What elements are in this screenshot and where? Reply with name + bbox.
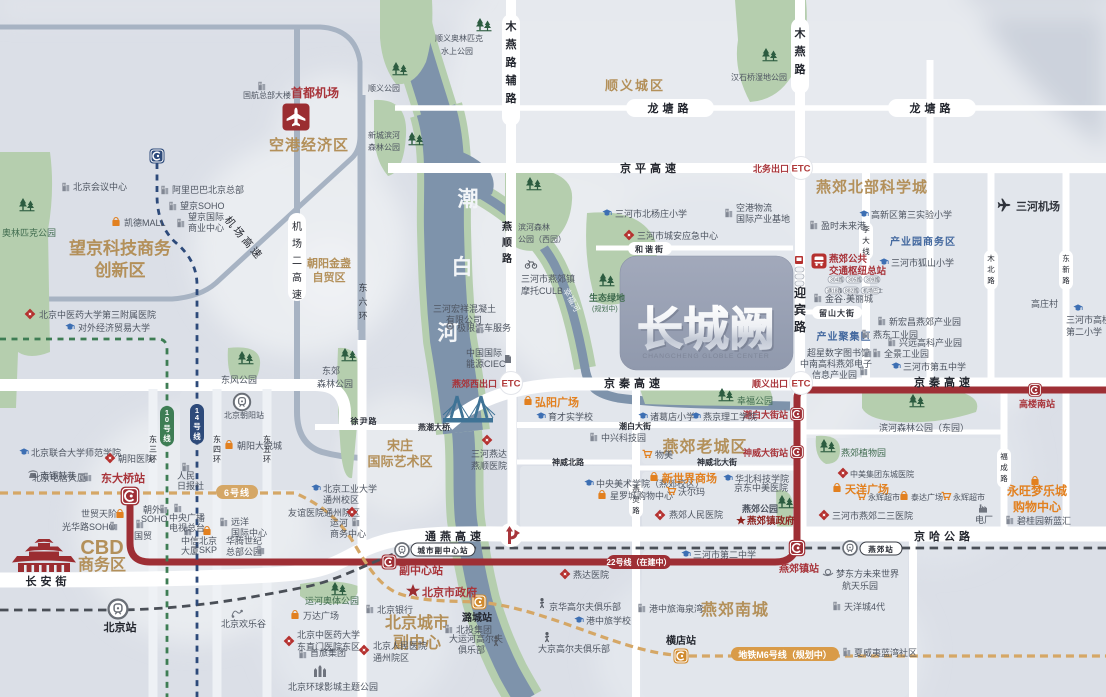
svg-text:新宏昌燕郊产业园: 新宏昌燕郊产业园 [889, 316, 961, 327]
svg-text:国航总部大楼: 国航总部大楼 [243, 90, 291, 100]
svg-text:燕郊植物园: 燕郊植物园 [841, 447, 886, 458]
svg-text:产业园商务区: 产业园商务区 [890, 235, 956, 248]
svg-text:三河市狐山小学: 三河市狐山小学 [891, 257, 954, 268]
svg-text:通燕高速: 通燕高速 [425, 529, 485, 543]
svg-text:北京电信大厦: 北京电信大厦 [32, 472, 86, 483]
svg-text:燕顺路: 燕顺路 [502, 220, 513, 265]
svg-text:京秦高速: 京秦高速 [604, 376, 664, 390]
svg-text:三河机场: 三河机场 [1016, 199, 1060, 213]
svg-text:北投集团: 北投集团 [456, 624, 492, 635]
svg-text:顺义公园: 顺义公园 [368, 84, 400, 93]
svg-text:中兴科技园: 中兴科技园 [601, 432, 646, 443]
svg-text:燕郊老城区: 燕郊老城区 [662, 437, 747, 456]
svg-text:CHANGCHENG GLOBLE CENTER: CHANGCHENG GLOBLE CENTER [642, 353, 769, 360]
svg-text:燕郊西出口: 燕郊西出口 [452, 378, 497, 389]
svg-text:福成路: 福成路 [1000, 452, 1008, 483]
svg-text:港中旅学校: 港中旅学校 [586, 615, 631, 626]
svg-text:北京站: 北京站 [104, 620, 137, 634]
svg-text:汉石桥湿地公园: 汉石桥湿地公园 [731, 72, 787, 82]
svg-text:京华高尔夫俱乐部: 京华高尔夫俱乐部 [549, 601, 621, 612]
svg-text:顺义出口: 顺义出口 [752, 378, 788, 389]
svg-text:兴远高科产业园: 兴远高科产业园 [899, 337, 962, 348]
svg-text:燕潮大桥: 燕潮大桥 [418, 422, 451, 432]
svg-text:京秦高速: 京秦高速 [914, 375, 974, 389]
svg-text:盈时未来港: 盈时未来港 [821, 220, 866, 231]
svg-text:木燕路: 木燕路 [794, 26, 807, 76]
svg-text:泰达广场: 泰达广场 [911, 492, 943, 502]
svg-text:潮白大街: 潮白大街 [619, 421, 651, 431]
svg-text:港中旅海泉湾: 港中旅海泉湾 [649, 603, 703, 614]
svg-text:沃尔玛: 沃尔玛 [678, 486, 705, 497]
svg-text:长城阙: 长城阙 [637, 303, 775, 355]
svg-text:长安街: 长安街 [26, 574, 71, 588]
svg-text:高庄村: 高庄村 [1031, 298, 1058, 309]
svg-text:朝阳大悦城: 朝阳大悦城 [237, 440, 282, 451]
svg-text:留山大街: 留山大街 [819, 308, 855, 318]
svg-text:三河市第五中学: 三河市第五中学 [903, 361, 966, 372]
svg-text:高楼南站: 高楼南站 [1019, 398, 1055, 409]
svg-text:碧桂园新蓝汇: 碧桂园新蓝汇 [1017, 515, 1071, 526]
svg-text:横店站: 横店站 [666, 634, 696, 647]
svg-text:燕郊北部科学城: 燕郊北部科学城 [816, 178, 928, 196]
svg-text:燕达医院: 燕达医院 [573, 569, 609, 580]
svg-text:诸葛店小学: 诸葛店小学 [650, 411, 695, 422]
svg-text:朝阳医院: 朝阳医院 [118, 453, 154, 464]
svg-text:万达广场: 万达广场 [303, 610, 339, 621]
svg-text:副中心站: 副中心站 [399, 563, 443, 577]
svg-text:北京中医药大学第三附属医院: 北京中医药大学第三附属医院 [39, 309, 156, 320]
svg-text:滨河森林公园（东园）: 滨河森林公园（东园） [879, 422, 969, 433]
svg-text:奥林匹克公园: 奥林匹克公园 [2, 227, 56, 238]
svg-text:北京会议中心: 北京会议中心 [73, 181, 127, 192]
svg-text:燕京理工学院: 燕京理工学院 [703, 411, 757, 422]
svg-text:天洋城4代: 天洋城4代 [844, 601, 885, 612]
svg-text:三河市第二中学: 三河市第二中学 [693, 549, 756, 560]
svg-text:全景工业园: 全景工业园 [884, 348, 929, 359]
svg-text:对外经济贸易大学: 对外经济贸易大学 [78, 322, 150, 333]
svg-text:幸福公园: 幸福公园 [737, 395, 773, 406]
svg-text:燕郊镇站: 燕郊镇站 [779, 562, 819, 575]
svg-text:京平高速: 京平高速 [620, 161, 680, 175]
svg-text:迎宾路: 迎宾路 [794, 285, 807, 334]
svg-text:和谐街: 和谐街 [635, 244, 665, 254]
svg-text:京哈公路: 京哈公路 [914, 529, 974, 543]
svg-text:新世界商场: 新世界商场 [662, 471, 717, 485]
svg-text:6号线: 6号线 [224, 487, 250, 498]
svg-text:北京市政府: 北京市政府 [422, 585, 477, 599]
svg-text:高新区第三实验小学: 高新区第三实验小学 [871, 209, 952, 220]
svg-text:大京高尔夫俱乐部: 大京高尔夫俱乐部 [538, 643, 610, 654]
svg-text:北京朝阳站: 北京朝阳站 [224, 410, 264, 420]
svg-text:燕郊镇政府: 燕郊镇政府 [747, 515, 795, 527]
svg-text:东六环: 东六环 [358, 282, 367, 321]
svg-text:燕郊人民医院: 燕郊人民医院 [669, 509, 723, 520]
svg-text:凯德MALL: 凯德MALL [124, 217, 166, 228]
svg-text:木北路: 木北路 [987, 253, 995, 285]
svg-text:徐尹路: 徐尹路 [350, 416, 378, 426]
svg-text:龙塘路: 龙塘路 [909, 101, 955, 115]
svg-text:顺义城区: 顺义城区 [605, 78, 665, 93]
svg-text:中美集团东城医院: 中美集团东城医院 [850, 469, 914, 479]
svg-text:木燕路辅路: 木燕路辅路 [505, 19, 518, 105]
svg-text:国贸: 国贸 [134, 530, 152, 541]
svg-text:夏威夷蓝湾社区: 夏威夷蓝湾社区 [854, 647, 917, 658]
svg-text:首都机场: 首都机场 [291, 85, 339, 100]
svg-text:超星数字图书馆: 超星数字图书馆 [807, 347, 870, 358]
svg-text:北务出口: 北务出口 [753, 163, 789, 174]
svg-text:永辉超市: 永辉超市 [953, 492, 985, 502]
svg-text:22号线（在建中）: 22号线（在建中） [607, 557, 672, 567]
svg-text:三河市北杨庄小学: 三河市北杨庄小学 [615, 208, 687, 219]
svg-text:北京环球影城主题公园: 北京环球影城主题公园 [288, 681, 378, 692]
svg-text:中央广播电视总台: 中央广播电视总台 [169, 512, 205, 533]
svg-text:东新路: 东新路 [1062, 253, 1070, 285]
svg-text:神威大街站: 神威大街站 [743, 447, 788, 458]
svg-text:光华路SOHO: 光华路SOHO [62, 521, 116, 532]
svg-text:东大桥站: 东大桥站 [101, 471, 145, 485]
svg-text:世贸天阶: 世贸天阶 [81, 508, 117, 519]
svg-text:CBD商务区: CBD商务区 [78, 537, 126, 574]
svg-text:弘阳广场: 弘阳广场 [535, 395, 579, 409]
svg-text:电厂: 电厂 [975, 514, 993, 525]
svg-text:北京银行: 北京银行 [377, 604, 413, 615]
svg-text:城市副中心站: 城市副中心站 [418, 545, 469, 555]
svg-text:北京SKP: 北京SKP [199, 535, 217, 555]
svg-text:金谷·美丽城: 金谷·美丽城 [825, 293, 873, 304]
svg-text:304路305路309路: 304路305路309路 [830, 277, 879, 284]
svg-text:神威北路: 神威北路 [552, 457, 585, 467]
svg-text:望京SOHO: 望京SOHO [180, 200, 225, 211]
svg-text:运河奥体公园: 运河奥体公园 [305, 595, 359, 606]
svg-text:东四环: 东四环 [213, 434, 221, 464]
svg-text:龙塘路: 龙塘路 [647, 101, 693, 115]
svg-text:育才实学校: 育才实学校 [548, 411, 593, 422]
svg-text:神威北大街: 神威北大街 [697, 457, 737, 467]
svg-text:三河市燕郊二三医院: 三河市燕郊二三医院 [832, 510, 913, 521]
svg-text:燕郊南城: 燕郊南城 [701, 600, 769, 619]
svg-text:星罗城购物中心: 星罗城购物中心 [610, 490, 673, 501]
svg-text:东风公园: 东风公园 [221, 374, 257, 385]
svg-text:燕郊公园: 燕郊公园 [742, 503, 778, 514]
svg-text:地铁M6号线（规划中）: 地铁M6号线（规划中） [738, 649, 832, 660]
svg-text:空港经济区: 空港经济区 [269, 136, 349, 154]
svg-text:京东中美医院: 京东中美医院 [734, 482, 788, 493]
svg-text:阿里巴巴北京总部: 阿里巴巴北京总部 [172, 184, 244, 195]
svg-text:永辉超市: 永辉超市 [868, 492, 900, 502]
svg-text:中信大厦: 中信大厦 [181, 535, 199, 556]
svg-text:潞城站: 潞城站 [462, 611, 492, 624]
svg-text:物美: 物美 [655, 449, 673, 460]
svg-text:三河市城安应急中心: 三河市城安应急中心 [637, 230, 718, 241]
svg-text:燕郊站: 燕郊站 [868, 544, 894, 554]
svg-text:北京欢乐谷: 北京欢乐谷 [221, 618, 266, 629]
